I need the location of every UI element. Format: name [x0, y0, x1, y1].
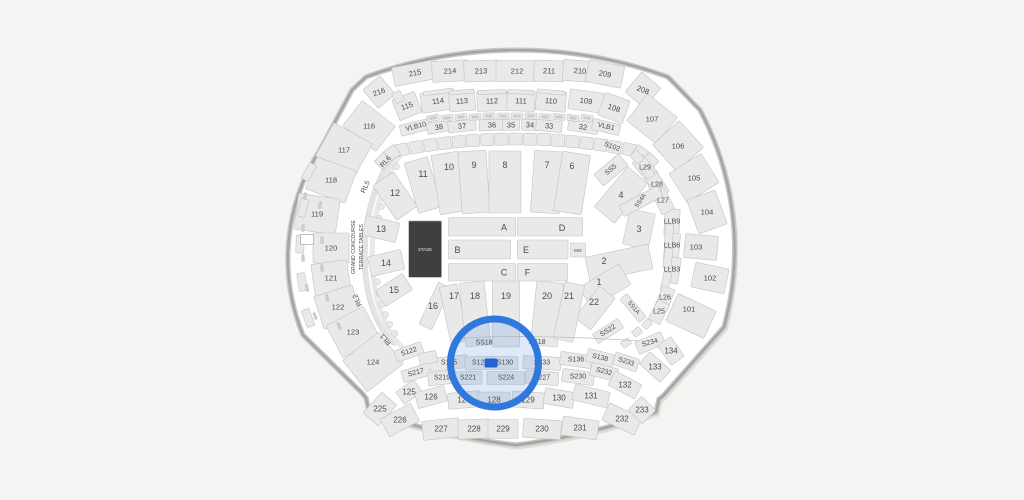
svg-text:F: F [525, 268, 531, 278]
svg-text:STAGE: STAGE [418, 247, 432, 252]
svg-text:110: 110 [545, 96, 558, 106]
svg-text:S230: S230 [570, 374, 586, 381]
svg-text:230: 230 [535, 425, 549, 434]
svg-text:111: 111 [515, 96, 527, 105]
svg-text:20: 20 [542, 291, 552, 301]
svg-text:L29: L29 [639, 165, 651, 172]
svg-text:B: B [454, 245, 460, 255]
svg-text:LLB3: LLB3 [664, 267, 680, 274]
svg-text:17: 17 [449, 291, 459, 301]
svg-text:6: 6 [569, 161, 574, 171]
svg-text:122: 122 [332, 303, 345, 312]
svg-text:226: 226 [393, 416, 407, 425]
svg-text:S136: S136 [568, 357, 584, 364]
svg-text:113: 113 [456, 96, 469, 106]
svg-text:A: A [501, 223, 507, 233]
svg-text:107: 107 [646, 115, 659, 124]
svg-text:L27: L27 [657, 198, 669, 205]
svg-text:132: 132 [618, 381, 632, 390]
svg-text:15: 15 [389, 285, 399, 295]
svg-text:231: 231 [573, 424, 587, 433]
svg-text:C: C [501, 268, 508, 278]
svg-text:124: 124 [367, 358, 380, 367]
svg-text:119: 119 [311, 210, 323, 219]
svg-text:114: 114 [431, 96, 444, 107]
svg-text:L26: L26 [659, 295, 671, 302]
svg-text:GRAND CONCOURSE: GRAND CONCOURSE [351, 220, 357, 274]
svg-text:227: 227 [434, 425, 448, 434]
svg-text:E: E [523, 245, 529, 255]
svg-text:9: 9 [471, 160, 476, 170]
svg-text:112: 112 [486, 96, 498, 105]
svg-text:116: 116 [363, 122, 375, 131]
svg-text:10: 10 [444, 162, 454, 172]
svg-text:101: 101 [683, 305, 696, 314]
svg-text:229: 229 [496, 425, 510, 434]
svg-text:22: 22 [589, 297, 599, 307]
svg-text:13: 13 [376, 224, 386, 234]
svg-text:33: 33 [544, 121, 553, 131]
svg-text:34: 34 [526, 120, 535, 129]
svg-text:131: 131 [584, 392, 598, 401]
svg-text:LLB6: LLB6 [664, 243, 680, 250]
svg-text:19: 19 [501, 291, 511, 301]
svg-text:MIX: MIX [574, 248, 582, 253]
svg-text:125: 125 [402, 388, 416, 397]
svg-text:130: 130 [552, 394, 566, 403]
svg-text:8: 8 [502, 160, 507, 170]
svg-text:D: D [559, 223, 566, 233]
svg-text:14: 14 [381, 258, 391, 268]
svg-text:37: 37 [457, 121, 466, 131]
svg-text:104: 104 [701, 208, 714, 217]
svg-text:123: 123 [347, 328, 360, 337]
svg-text:106: 106 [672, 142, 685, 151]
svg-text:103: 103 [690, 243, 703, 252]
svg-text:133: 133 [648, 363, 662, 372]
svg-text:102: 102 [704, 274, 717, 283]
svg-text:210: 210 [573, 66, 586, 76]
svg-text:232: 232 [615, 415, 629, 424]
svg-text:35: 35 [507, 121, 515, 130]
svg-text:LLB9: LLB9 [664, 219, 680, 226]
svg-text:1: 1 [596, 277, 601, 287]
svg-text:38: 38 [434, 122, 444, 132]
svg-text:21: 21 [564, 291, 574, 301]
svg-text:7: 7 [544, 160, 549, 170]
svg-text:228: 228 [467, 425, 481, 434]
svg-text:4: 4 [618, 190, 623, 200]
svg-text:120: 120 [325, 244, 338, 253]
svg-text:214: 214 [443, 66, 456, 76]
svg-text:S219: S219 [434, 375, 450, 382]
svg-text:225: 225 [373, 405, 387, 414]
svg-text:211: 211 [543, 66, 555, 75]
svg-text:L28: L28 [651, 182, 663, 189]
svg-text:16: 16 [428, 301, 438, 311]
svg-text:212: 212 [511, 67, 524, 76]
svg-text:TERRACE TABLES: TERRACE TABLES [359, 224, 365, 270]
svg-text:105: 105 [688, 174, 701, 183]
svg-text:117: 117 [338, 146, 350, 155]
svg-text:L25: L25 [653, 309, 665, 316]
svg-text:36: 36 [488, 120, 497, 129]
svg-text:118: 118 [325, 176, 337, 185]
svg-text:233: 233 [635, 406, 649, 415]
svg-text:134: 134 [664, 347, 678, 356]
svg-text:3: 3 [636, 224, 641, 234]
svg-text:2: 2 [601, 256, 606, 266]
svg-text:32: 32 [578, 122, 588, 132]
svg-text:121: 121 [325, 274, 338, 283]
svg-text:12: 12 [390, 188, 400, 198]
svg-text:11: 11 [418, 169, 427, 179]
svg-text:109: 109 [579, 96, 593, 107]
svg-text:126: 126 [424, 393, 438, 402]
svg-text:213: 213 [475, 66, 488, 75]
svg-text:18: 18 [470, 291, 480, 301]
